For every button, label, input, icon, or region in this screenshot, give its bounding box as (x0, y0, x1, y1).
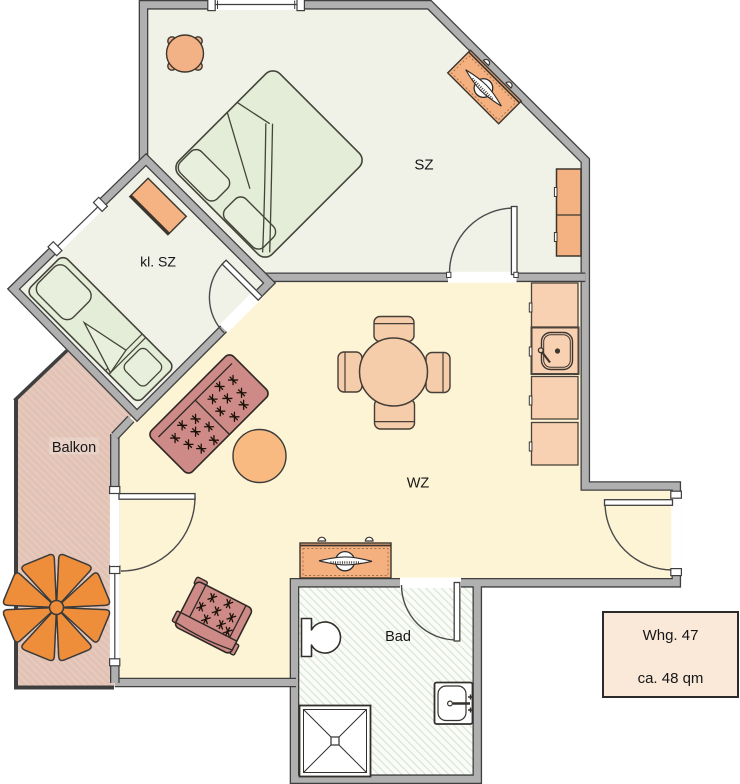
svg-text:Bad: Bad (385, 629, 411, 645)
svg-text:WZ: WZ (407, 476, 430, 492)
svg-text:kl. SZ: kl. SZ (140, 254, 176, 270)
svg-text:Whg. 47: Whg. 47 (643, 627, 699, 644)
svg-text:Balkon: Balkon (52, 440, 96, 456)
svg-text:SZ: SZ (414, 157, 433, 174)
svg-text:ca. 48 qm: ca. 48 qm (638, 670, 704, 687)
